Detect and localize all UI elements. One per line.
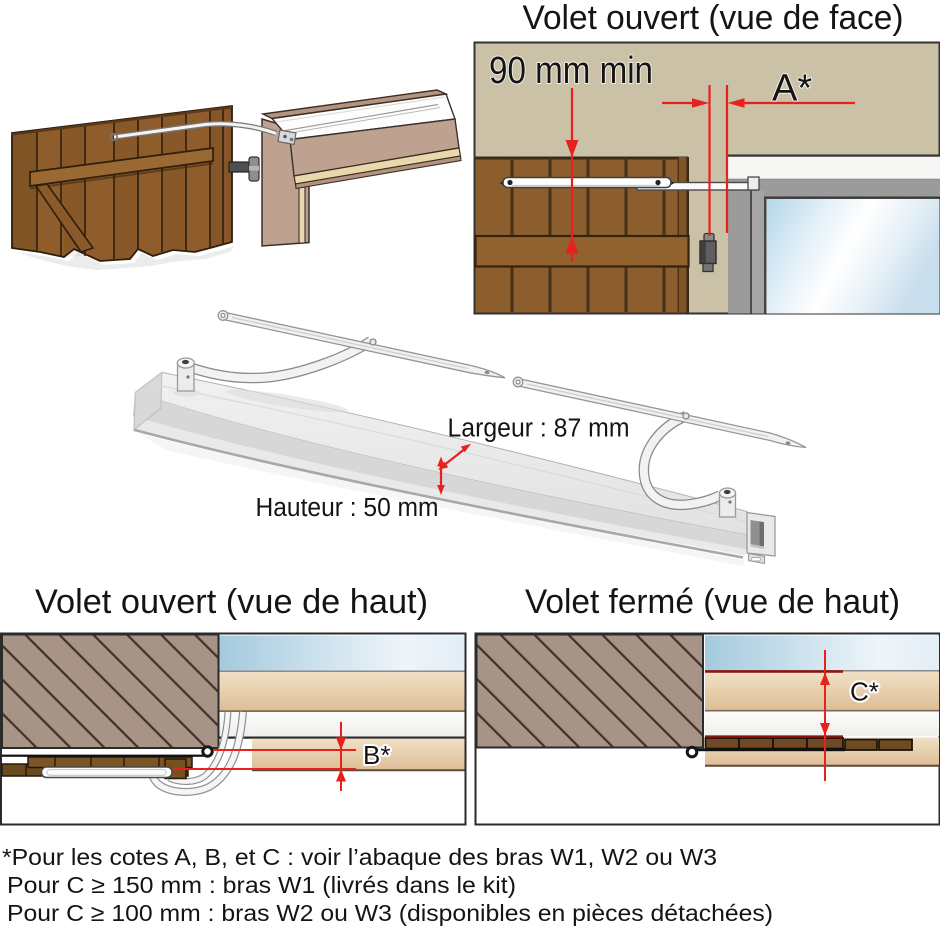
svg-text:Hauteur : 50 mm: Hauteur : 50 mm [256, 494, 439, 522]
svg-text:C*: C* [850, 677, 879, 707]
svg-text:Largeur : 87 mm: Largeur : 87 mm [448, 415, 630, 443]
svg-text:Volet fermé (vue de haut): Volet fermé (vue de haut) [525, 583, 900, 621]
svg-text:A*: A* [772, 68, 812, 110]
svg-text:Pour C ≥ 100 mm : bras W2 ou W: Pour C ≥ 100 mm : bras W2 ou W3 (disponi… [7, 900, 773, 926]
svg-text:*Pour les cotes A, B, et C : v: *Pour les cotes A, B, et C : voir l’abaq… [2, 844, 717, 870]
svg-text:90 mm min: 90 mm min [489, 50, 653, 92]
svg-text:B*: B* [363, 740, 390, 770]
svg-text:Volet ouvert (vue de haut): Volet ouvert (vue de haut) [35, 583, 428, 621]
svg-text:Pour C ≥ 150 mm : bras W1 (liv: Pour C ≥ 150 mm : bras W1 (livrés dans l… [7, 872, 516, 898]
svg-text:Volet ouvert (vue de face): Volet ouvert (vue de face) [523, 0, 904, 37]
